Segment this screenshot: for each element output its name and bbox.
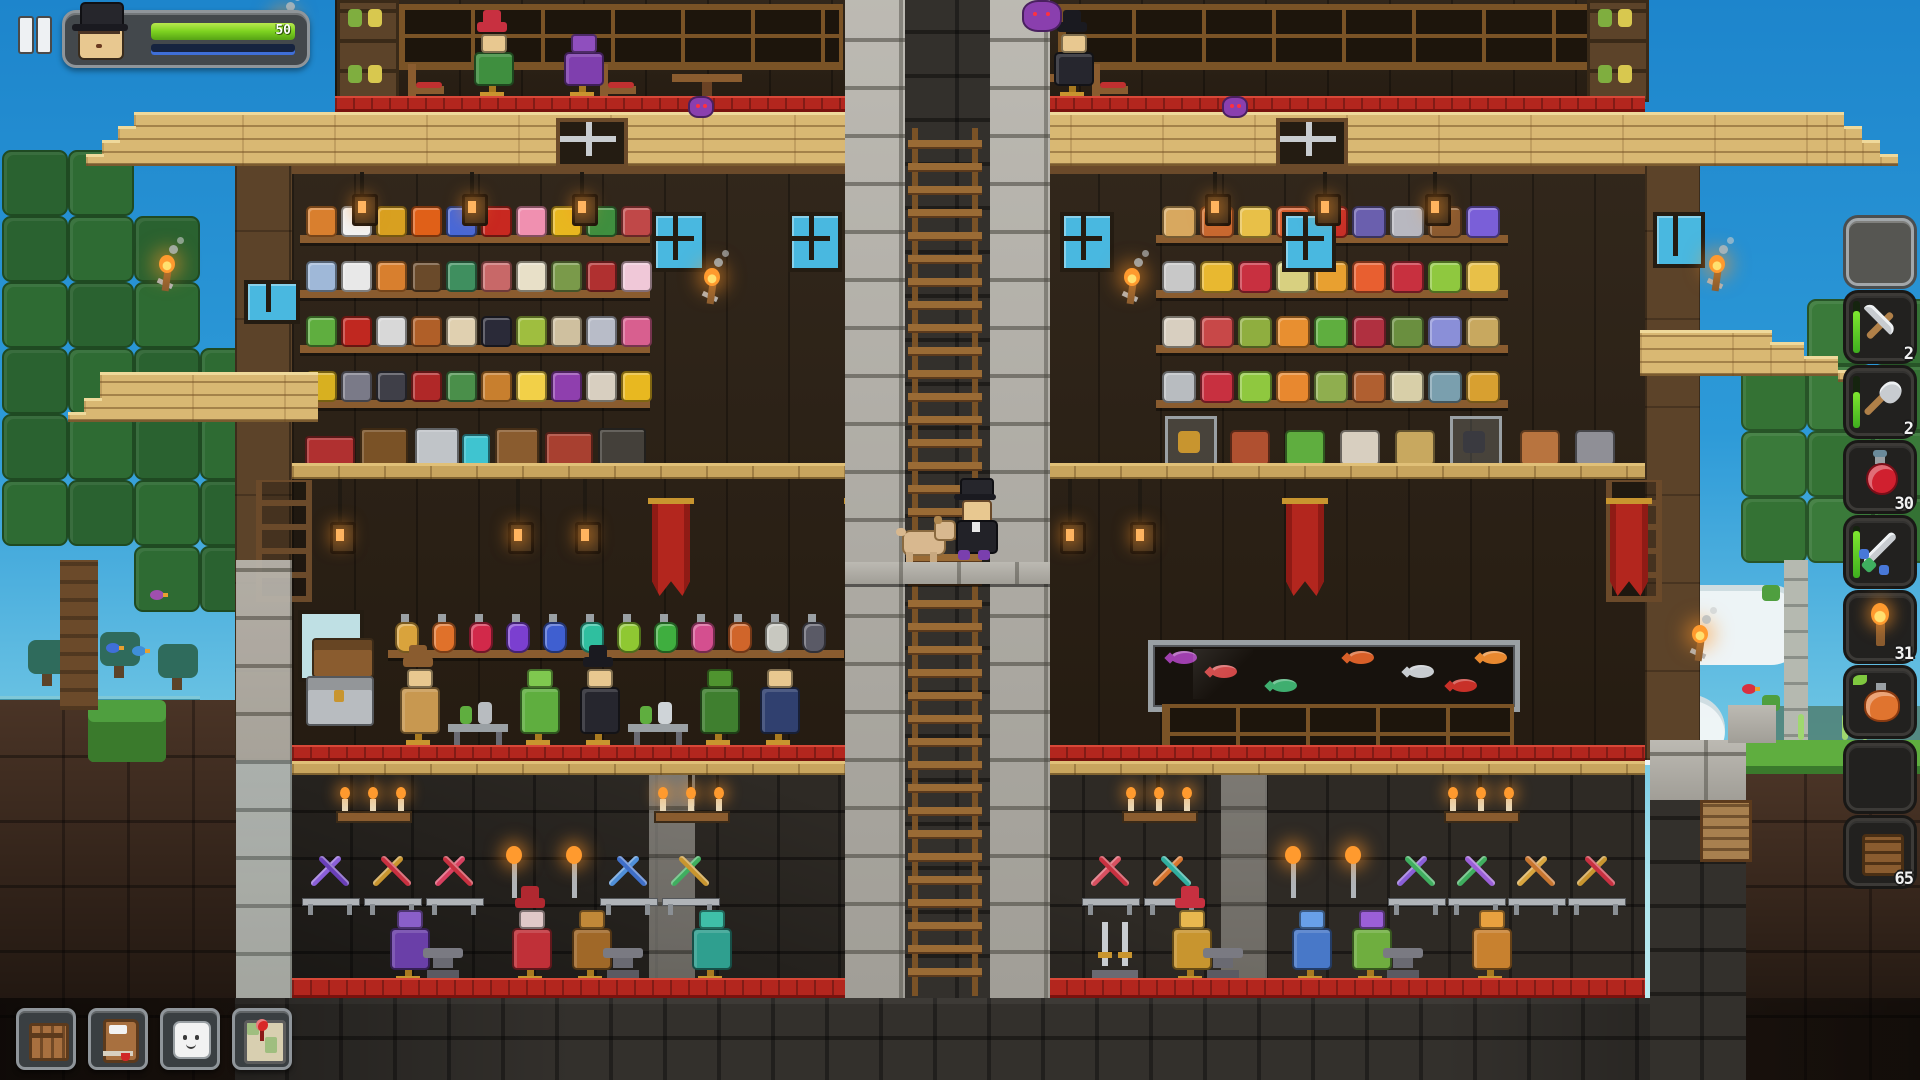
chat-eye [183,1035,187,1040]
crate-icon [29,1023,69,1061]
book-label [109,1025,127,1034]
chat-button[interactable] [160,1008,220,1070]
bottom-toolbar [0,0,1920,1080]
map-button[interactable] [232,1008,292,1070]
map-pin [256,1019,268,1031]
chat-eye [195,1035,199,1040]
inventory-button[interactable] [16,1008,76,1070]
map-terrain [265,1037,277,1053]
crate-lid [29,1033,63,1038]
game-screen: 50 22303165 [0,0,1920,1080]
book-bookmark [121,1053,130,1061]
journal-button[interactable] [88,1008,148,1070]
chat-icon [173,1021,211,1059]
